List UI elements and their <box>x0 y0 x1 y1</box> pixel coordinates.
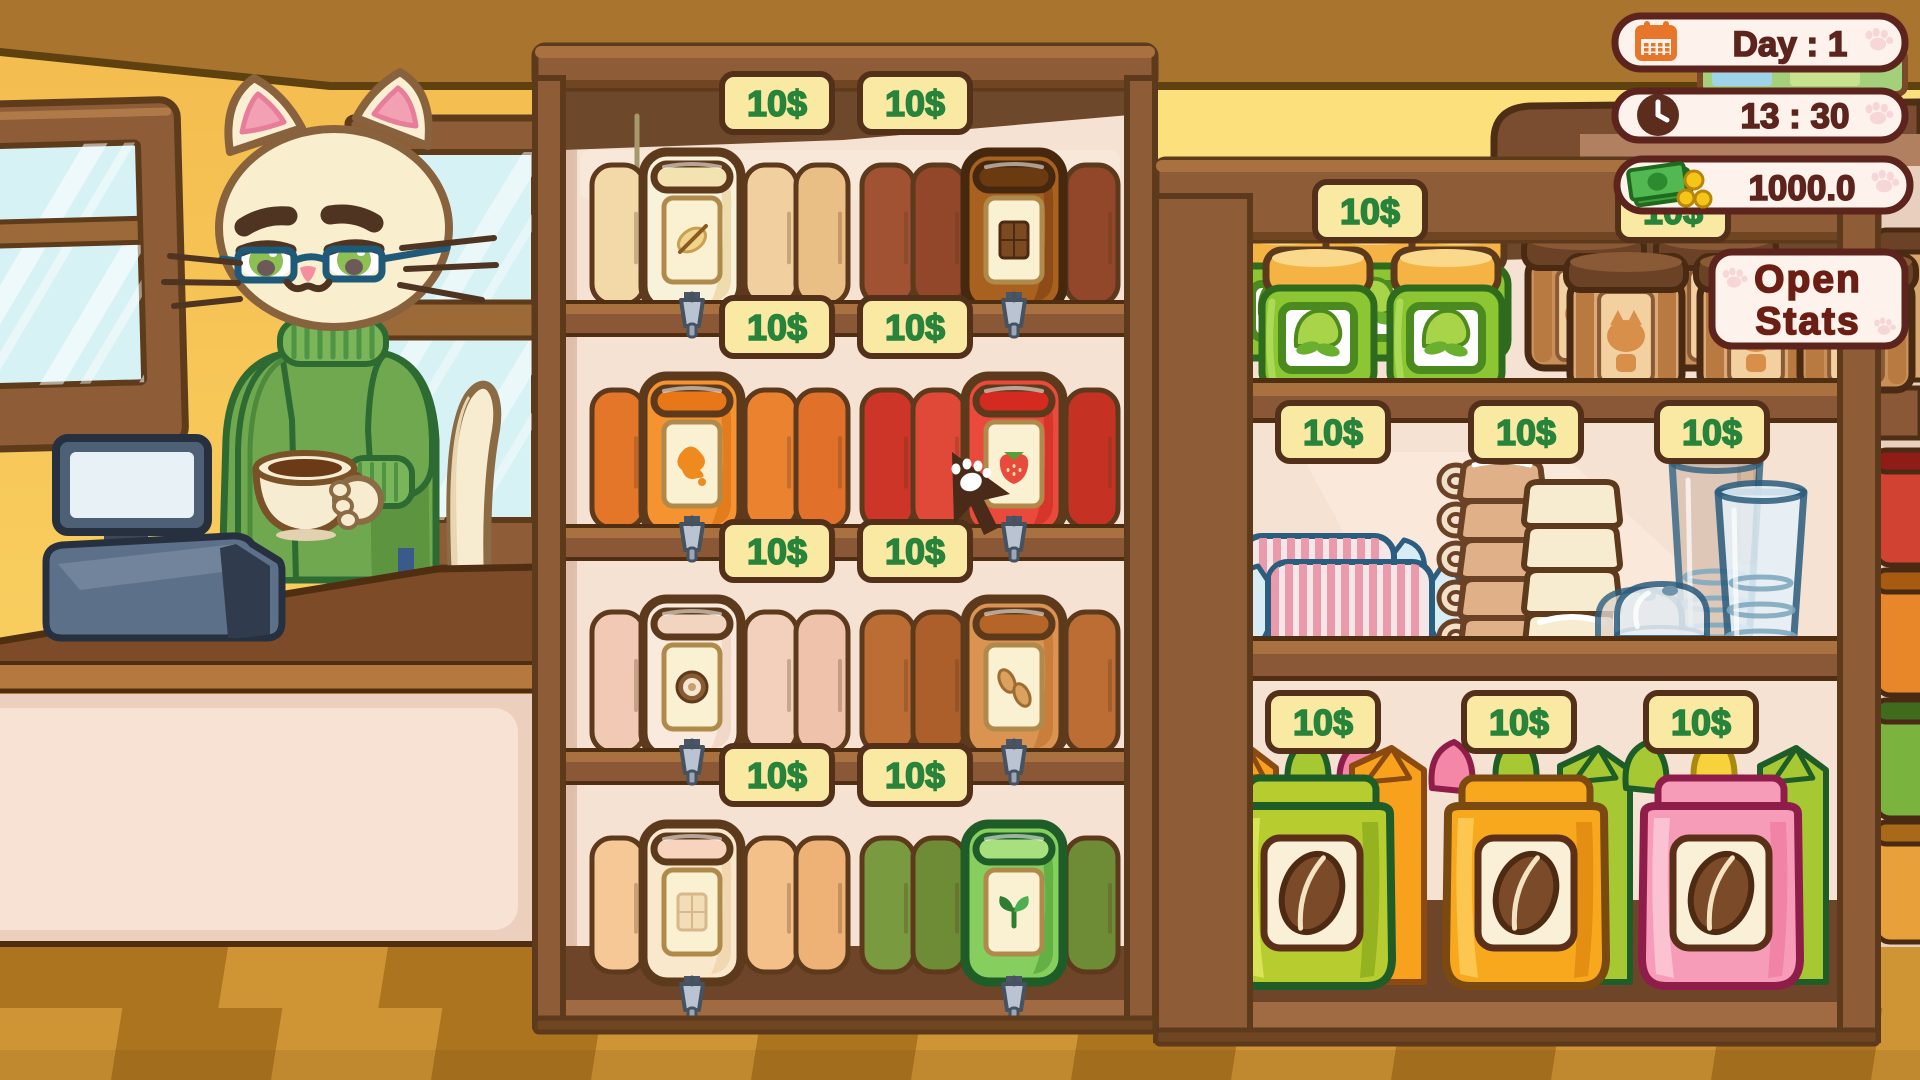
svg-text:10$: 10$ <box>1496 412 1556 453</box>
svg-text:13 : 30: 13 : 30 <box>1741 97 1850 136</box>
svg-text:10$: 10$ <box>747 307 807 348</box>
svg-text:10$: 10$ <box>1303 412 1363 453</box>
svg-text:10$: 10$ <box>885 531 945 572</box>
svg-text:1000.0: 1000.0 <box>1748 169 1855 208</box>
svg-text:10$: 10$ <box>885 83 945 124</box>
svg-text:Stats: Stats <box>1755 300 1860 343</box>
svg-text:10$: 10$ <box>1340 191 1400 232</box>
svg-text:10$: 10$ <box>1293 702 1353 743</box>
svg-text:10$: 10$ <box>1671 702 1731 743</box>
svg-text:10$: 10$ <box>747 531 807 572</box>
svg-text:10$: 10$ <box>1489 702 1549 743</box>
svg-text:10$: 10$ <box>885 307 945 348</box>
svg-text:Day : 1: Day : 1 <box>1733 25 1848 64</box>
svg-text:10$: 10$ <box>885 755 945 796</box>
svg-text:10$: 10$ <box>1682 412 1742 453</box>
svg-text:10$: 10$ <box>747 83 807 124</box>
svg-text:Open: Open <box>1754 258 1862 301</box>
svg-text:10$: 10$ <box>747 755 807 796</box>
